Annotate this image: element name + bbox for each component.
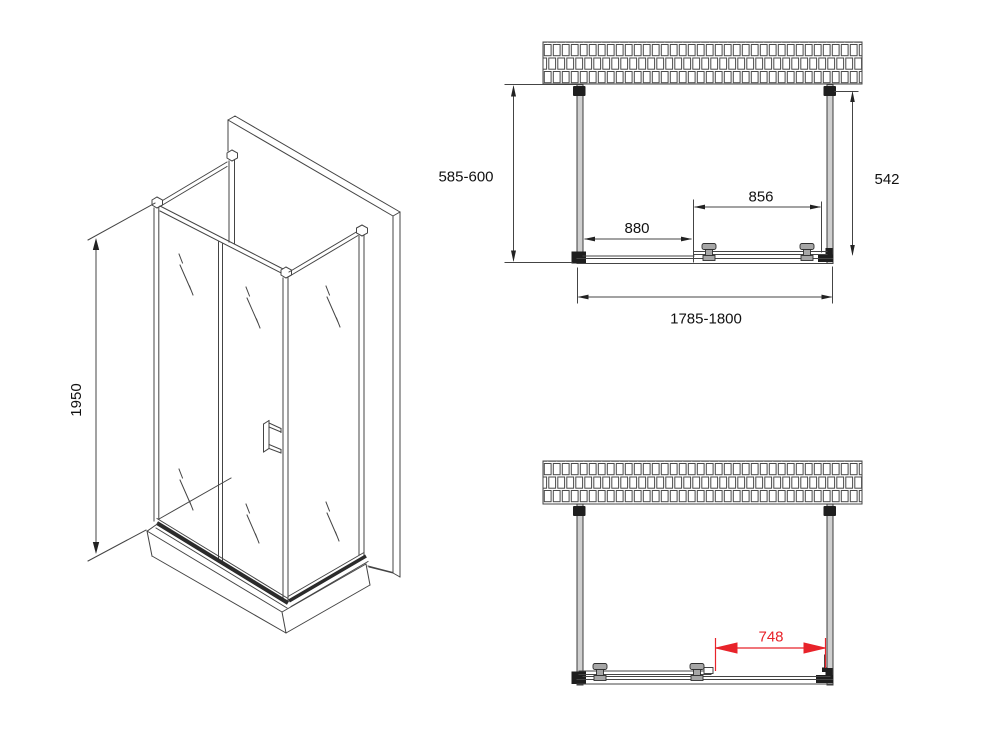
door-stile: [219, 242, 223, 562]
arrow-down-icon: [93, 542, 99, 554]
door-roller-icon: [690, 664, 704, 681]
dimension-door-width: 856: [694, 189, 821, 210]
back-right-post: [357, 225, 368, 557]
front-right-post: [281, 267, 292, 601]
plan-view-bottom: 748: [543, 461, 862, 685]
arrow-up-icon: [93, 238, 99, 250]
bottom-rail-plan-open: [577, 655, 833, 684]
wall-bracket-icon: [824, 506, 837, 516]
depth-left-label: 585-600: [438, 169, 493, 186]
front-top-rail: [160, 206, 287, 276]
left-wall-profile: [572, 85, 587, 264]
bottom-rail-plan: [577, 200, 833, 264]
door-roller-icon: [593, 664, 607, 681]
door-edge-stub: [704, 668, 713, 674]
front-left-post: [152, 197, 163, 521]
door-width-label: 856: [748, 189, 773, 206]
back-wall-panel: [228, 116, 400, 577]
arrow-right-icon: [804, 643, 825, 653]
dimension-fixed-panel: 880: [584, 220, 692, 241]
fixed-panel-width-label: 880: [624, 220, 649, 237]
plan-view-top: 585-600 542 880 856 1785-1800: [438, 42, 899, 328]
shower-enclosure-technical-drawing: 1950: [0, 0, 1000, 753]
back-left-post: [227, 150, 238, 244]
dimension-total-width: 1785-1800: [578, 267, 833, 328]
wall-hatch: [543, 42, 862, 84]
drawing-canvas: 1950: [0, 0, 1000, 753]
right-wall-profile: [818, 85, 836, 264]
depth-right-label: 542: [874, 171, 899, 188]
wall-hatch: [543, 461, 862, 504]
total-width-label: 1785-1800: [670, 311, 742, 328]
wall-bracket-icon: [573, 86, 586, 96]
arrow-left-icon: [716, 643, 737, 653]
height-dimension-label: 1950: [68, 383, 85, 416]
right-panel-top-edge: [289, 231, 358, 277]
dimension-door-opening: 748: [716, 629, 826, 672]
door-handle: [264, 421, 282, 454]
wall-bracket-icon: [824, 86, 837, 96]
dimension-height: 1950: [68, 203, 155, 561]
dimension-depth-right: 542: [835, 91, 900, 256]
wall-bracket-icon: [573, 506, 586, 516]
glass-reflection-marks: [179, 254, 340, 543]
left-panel-top-edge: [160, 162, 227, 207]
left-wall-profile: [572, 504, 587, 685]
isometric-view: 1950: [68, 116, 400, 633]
door-opening-label: 748: [758, 629, 783, 646]
dimension-depth-left: 585-600: [438, 85, 577, 263]
